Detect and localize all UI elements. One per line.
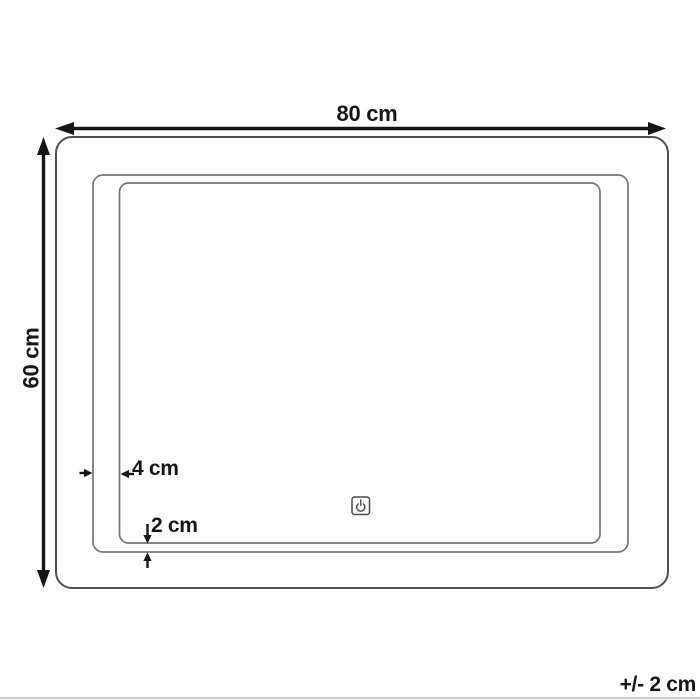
width-arrowhead-left: [55, 122, 74, 135]
width-dimension-label: 80 cm: [282, 101, 452, 126]
power-icon: [352, 497, 370, 515]
frame-offset-arrow-right: [84, 469, 93, 477]
edge-offset-arrow-up: [143, 553, 151, 562]
edge-offset-label: 2 cm: [151, 514, 198, 538]
mirror-led-frame: [93, 175, 628, 552]
mirror-inner-frame: [120, 183, 601, 543]
width-arrowhead-right: [648, 122, 666, 135]
tolerance-label: +/- 2 cm: [620, 673, 696, 697]
mirror-outer-frame: [56, 137, 668, 588]
frame-offset-arrow-left: [121, 470, 130, 478]
height-dimension-label: 60 cm: [18, 328, 43, 389]
frame-offset-arrows: [80, 469, 135, 478]
height-arrowhead-bottom: [37, 570, 50, 588]
frame-offset-label: 4 cm: [132, 457, 179, 481]
mirror-dimension-diagram: 80 cm 60 cm 4 cm 2 cm +/- 2 cm: [0, 0, 700, 700]
height-arrowhead-top: [37, 137, 50, 155]
